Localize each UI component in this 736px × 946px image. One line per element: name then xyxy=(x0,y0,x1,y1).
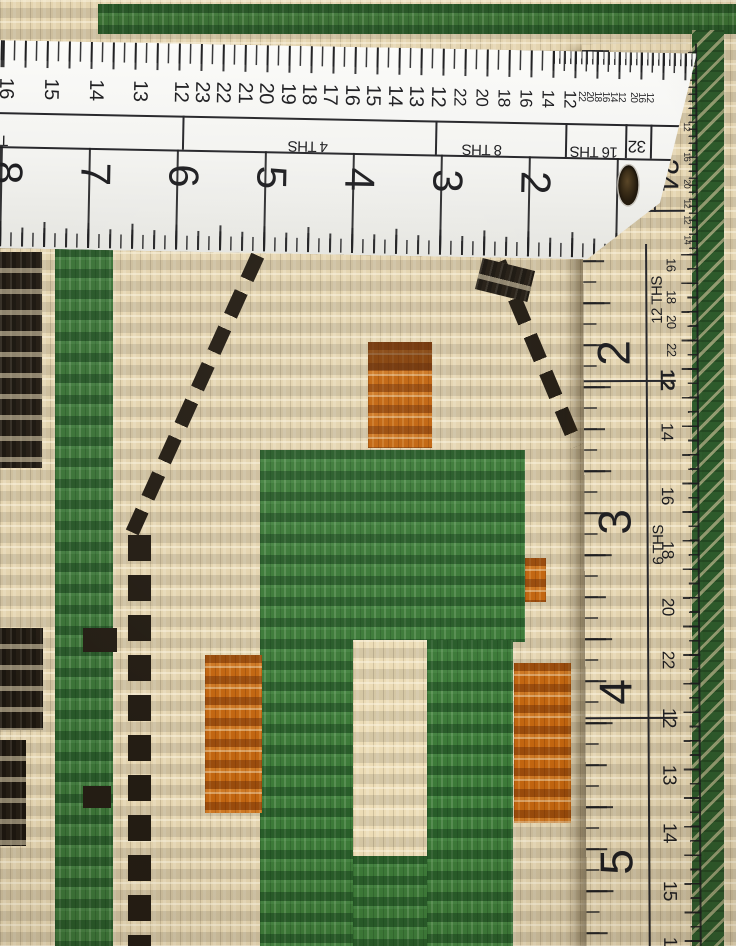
ruler-number: 20 xyxy=(665,315,678,329)
ruler-number: 14 xyxy=(86,79,106,101)
horizontal-ruler-cell-separator-3 xyxy=(565,123,567,157)
ruler-number: 22 xyxy=(660,651,677,669)
ruler-number: 3 xyxy=(591,509,637,534)
ruler-number: 23 xyxy=(192,81,212,103)
ruler-number: 16 xyxy=(659,487,676,505)
ruler-number: 12 xyxy=(428,86,448,108)
ruler-number: 6 xyxy=(162,164,204,188)
ruler-number: 12 xyxy=(644,92,654,102)
ruler-number: 20 xyxy=(256,82,276,104)
ruler-number: 17 xyxy=(320,84,340,106)
ruler-number: 16 xyxy=(342,84,362,106)
ruler-number: 8 THS xyxy=(462,142,502,158)
ruler-number: 15 xyxy=(660,881,679,901)
ruler-number: 5 xyxy=(250,166,292,190)
ruler-number: 5 xyxy=(593,849,639,874)
ruler-number: 12 xyxy=(682,122,691,131)
ruler-number: 18 xyxy=(299,83,319,105)
horizontal-ruler-band-line-1 xyxy=(0,112,698,127)
ruler-number: 22 xyxy=(451,88,468,106)
rug-orange-small-motif xyxy=(525,558,546,602)
vertical-ruler-right-ticks-medium xyxy=(681,254,702,946)
ruler-number: 22 xyxy=(213,82,233,104)
vertical-ruler-band-separator xyxy=(645,244,650,946)
ruler-number: 4 xyxy=(592,679,638,704)
ruler-number: 20 xyxy=(473,88,490,106)
ruler-number: 21 xyxy=(235,82,255,104)
horizontal-ruler-cell-separator-1 xyxy=(182,116,184,150)
rug-black-dash-on-stripe-1 xyxy=(83,628,117,652)
ruler-number: 19 xyxy=(278,83,298,105)
ruler-number: 12 xyxy=(682,199,691,208)
ruler-number: 12 xyxy=(659,708,678,728)
photo-rug-with-rulers: 2345 12 THS6 THS 16182022121416182022121… xyxy=(0,0,736,946)
rug-green-lower-left-leg xyxy=(260,640,353,946)
ruler-number: 16 THS xyxy=(570,144,618,160)
ruler-number: 15 xyxy=(41,78,61,100)
ruler-number: 12 xyxy=(657,369,677,390)
ruler-number: 22 xyxy=(665,343,678,357)
ruler-number: 13 xyxy=(406,85,426,107)
ruler-number: 16 xyxy=(660,937,679,946)
rug-orange-block-dark-rows xyxy=(368,342,432,370)
ruler-number: 16 xyxy=(665,258,678,272)
rug-cream-slot xyxy=(353,640,427,856)
ruler-number: 14 xyxy=(539,90,556,108)
ruler-number: 12 xyxy=(682,215,691,224)
ruler-number: 20 xyxy=(682,179,691,188)
ruler-number: 2 xyxy=(591,340,637,365)
ruler-number: 8 xyxy=(0,160,29,184)
rug-left-black-column-lower xyxy=(0,628,43,730)
ruler-number: THS xyxy=(0,132,8,148)
ruler-number: 20 xyxy=(659,598,676,616)
ruler-number: 12 xyxy=(616,92,626,102)
ruler-number: 12 xyxy=(171,81,191,103)
ruler-number: 4 THS xyxy=(288,138,328,154)
ruler-number: 18 xyxy=(665,290,678,304)
rug-left-black-column-upper xyxy=(0,252,42,468)
ruler-number: 18 xyxy=(495,89,512,107)
ruler-number: 15 xyxy=(363,84,383,106)
ruler-number: 18 xyxy=(659,541,676,559)
ruler-number: 12 THS xyxy=(650,276,665,324)
ruler-number: 3 xyxy=(426,169,468,193)
ruler-number: 14 xyxy=(660,823,679,843)
ruler-number: 14 xyxy=(683,235,692,244)
rug-green-slot-bottom-fill xyxy=(353,855,427,946)
horizontal-ruler-cell-separator-5 xyxy=(650,125,652,159)
rug-green-main-block xyxy=(260,450,525,642)
ruler-number: 2 xyxy=(514,171,556,195)
rug-orange-block-left xyxy=(205,655,262,813)
ruler-number: 13 xyxy=(130,80,150,102)
ruler-number: 16 xyxy=(682,152,691,161)
rug-orange-block-right xyxy=(514,663,571,823)
horizontal-ruler-cell-separator-2 xyxy=(435,120,437,154)
ruler-number: 14 xyxy=(385,85,405,107)
rug-green-stripe-left xyxy=(55,248,113,946)
ruler-number: 16 xyxy=(0,77,16,99)
ruler-number: 13 xyxy=(659,765,678,785)
rug-left-black-column-lower2 xyxy=(0,740,26,846)
ruler-number: 7 xyxy=(74,162,116,186)
rug-black-vertical-dashed-line xyxy=(128,535,151,946)
rug-green-lower-right-leg xyxy=(427,640,513,946)
ruler-number: 16 xyxy=(517,89,534,107)
rug-black-dash-on-stripe-2 xyxy=(83,786,111,808)
horizontal-ruler: 1615141312232221201918171615141312222018… xyxy=(0,40,700,262)
ruler-number: 14 xyxy=(658,423,675,441)
ruler-number: 32 xyxy=(628,138,646,155)
rug-top-green-band xyxy=(98,4,736,34)
ruler-number: 4 xyxy=(338,167,380,191)
